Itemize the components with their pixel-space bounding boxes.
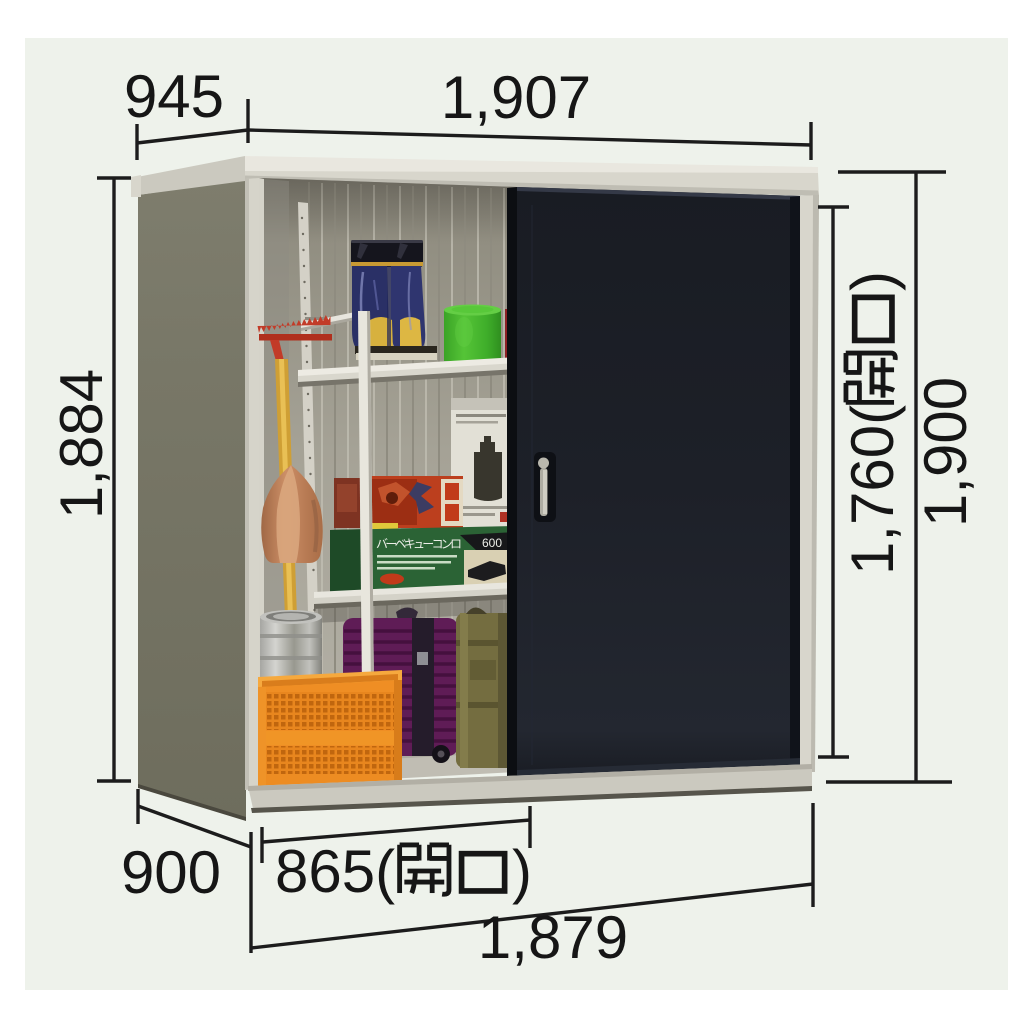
svg-text:1,879: 1,879 bbox=[478, 904, 628, 971]
svg-text:): ) bbox=[512, 838, 532, 905]
svg-text:): ) bbox=[839, 271, 906, 291]
svg-text:865(: 865( bbox=[275, 838, 395, 905]
svg-text:1,907: 1,907 bbox=[441, 64, 591, 131]
svg-text:1,884: 1,884 bbox=[48, 369, 115, 519]
svg-text:1,900: 1,900 bbox=[912, 377, 979, 527]
svg-text:1,760(: 1,760( bbox=[839, 405, 906, 575]
svg-text:900: 900 bbox=[121, 839, 221, 906]
svg-text:945: 945 bbox=[124, 63, 224, 130]
svg-text:バーベキューコンロ: バーベキューコンロ bbox=[376, 537, 462, 551]
svg-text:600: 600 bbox=[482, 536, 502, 550]
